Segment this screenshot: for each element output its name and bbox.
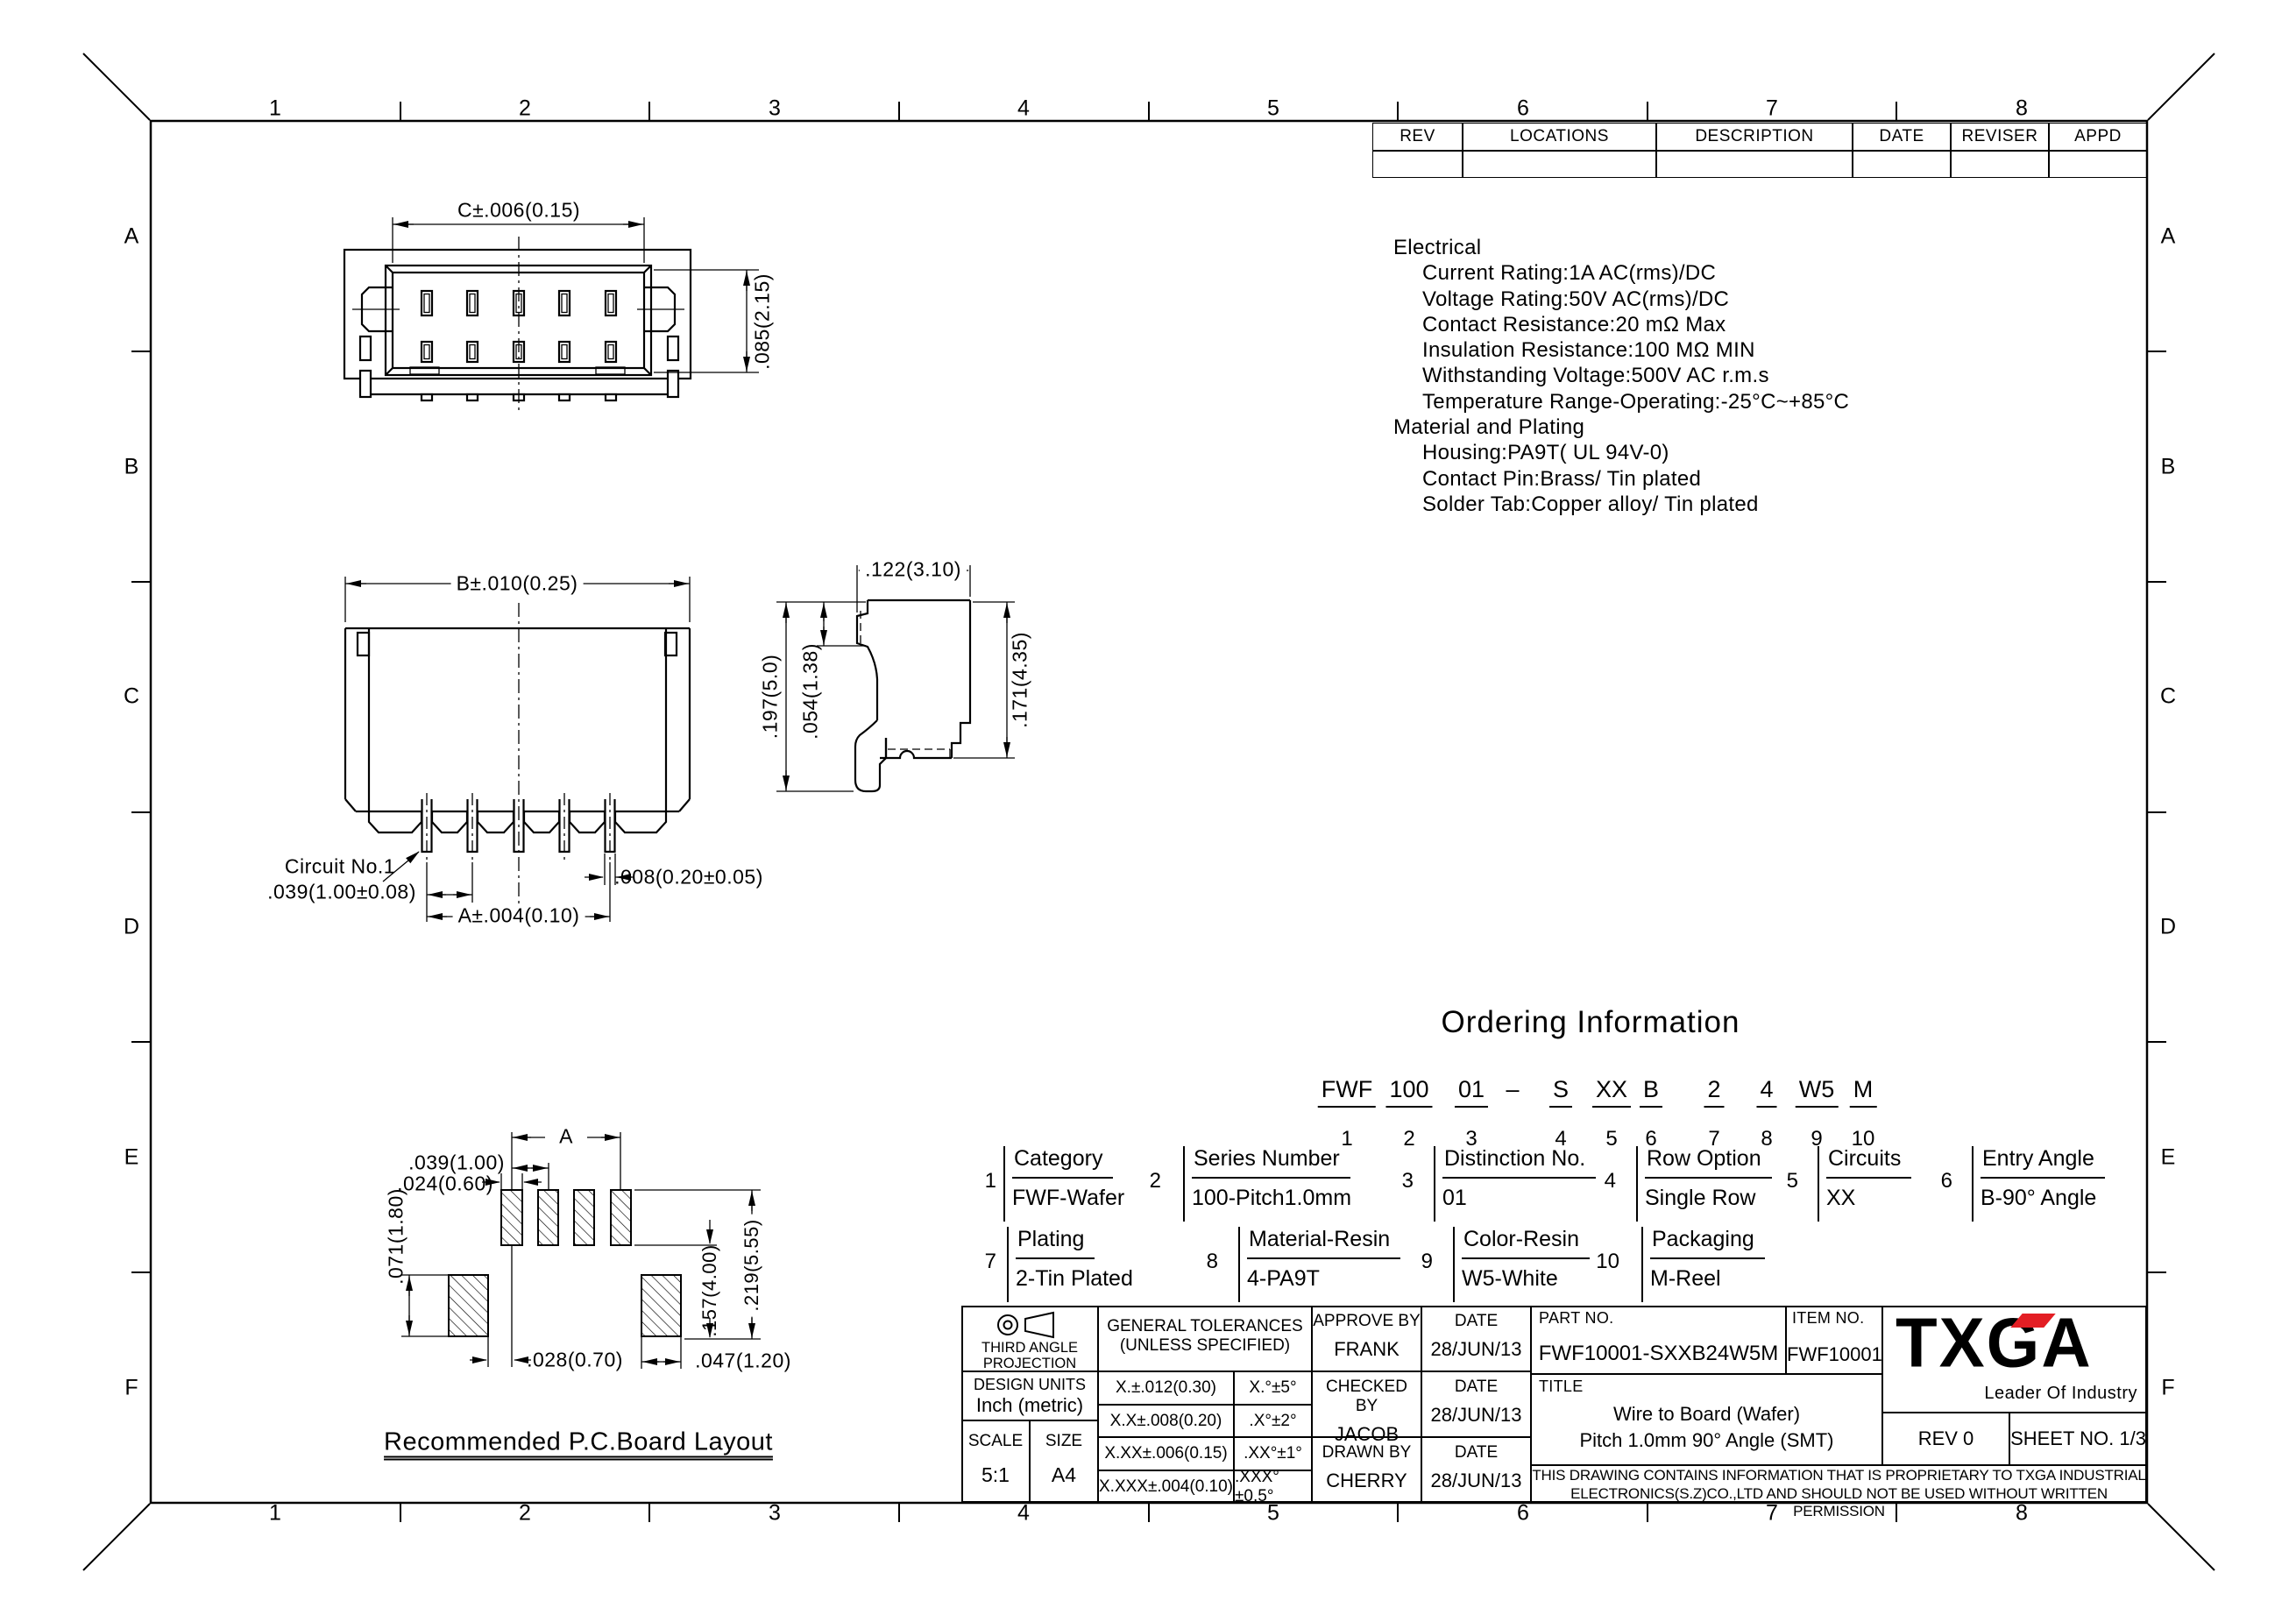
spec-line: Temperature Range-Operating:-25°C~+85°C bbox=[1422, 389, 1849, 414]
grid-col-label: 2 bbox=[519, 1501, 531, 1526]
rev-empty-cell bbox=[1463, 151, 1656, 178]
scale-cell: SCALE 5:1 bbox=[961, 1420, 1030, 1503]
dim-label: .219(5.55) bbox=[741, 1214, 763, 1316]
approve-date-cell: DATE 28/JUN/13 bbox=[1421, 1306, 1531, 1371]
projection-caption: PROJECTION bbox=[962, 1356, 1097, 1372]
ordering-item-number: 8 bbox=[1187, 1250, 1218, 1274]
code-segment: 4 bbox=[1756, 1076, 1776, 1108]
rev-header: DESCRIPTION bbox=[1656, 123, 1853, 151]
code-segment: 100 bbox=[1385, 1076, 1432, 1108]
spec-section-heading: Material and Plating bbox=[1393, 414, 1849, 440]
ordering-item: Series Number 100-Pitch1.0mm bbox=[1183, 1146, 1351, 1222]
code-segment: M bbox=[1850, 1076, 1877, 1108]
dim-label: .085(2.15) bbox=[751, 273, 775, 370]
drawing-title: Wire to Board (Wafer) bbox=[1532, 1403, 1881, 1426]
ordering-item-number: 9 bbox=[1401, 1250, 1433, 1274]
dim-label: .047(1.20) bbox=[695, 1349, 791, 1373]
part-no-cell: PART NO. FWF10001-SXXB24W5M bbox=[1531, 1306, 1786, 1374]
ordering-item-number: 6 bbox=[1921, 1169, 1952, 1193]
tolerance-linear: X.±.012(0.30) bbox=[1098, 1371, 1234, 1405]
checked-by-cell: CHECKED BY JACOB bbox=[1312, 1371, 1421, 1437]
grid-row-label: F bbox=[2161, 1376, 2174, 1401]
engineering-drawing-sheet: 1 2 3 4 5 6 7 8 1 2 3 4 5 6 7 8 A B C D … bbox=[0, 0, 2296, 1622]
dim-label: .028(0.70) bbox=[527, 1349, 623, 1372]
ordering-item-number: 3 bbox=[1382, 1169, 1414, 1193]
view-front-face bbox=[344, 217, 759, 414]
ordering-item-number: 1 bbox=[965, 1169, 996, 1193]
revision-table: REV LOCATIONS DESCRIPTION DATE REVISER A… bbox=[1372, 123, 2147, 178]
ordering-item: Distinction No. 01 bbox=[1434, 1146, 1596, 1222]
third-angle-projection-icon bbox=[996, 1310, 1066, 1340]
txga-tagline: Leader Of Industry bbox=[1984, 1384, 2137, 1404]
ordering-item: Category FWF-Wafer bbox=[1003, 1146, 1124, 1222]
code-segment: FWF bbox=[1318, 1076, 1376, 1108]
ordering-item: Material-Resin 4-PA9T bbox=[1238, 1227, 1400, 1302]
grid-row-label: A bbox=[2161, 224, 2176, 250]
grid-col-label: 3 bbox=[769, 1501, 781, 1526]
drawn-date-cell: DATE 28/JUN/13 bbox=[1421, 1437, 1531, 1503]
code-position-number: 5 bbox=[1605, 1127, 1617, 1151]
code-segment: S bbox=[1549, 1076, 1572, 1108]
grid-col-label: 4 bbox=[1017, 96, 1030, 122]
projection-caption: THIRD ANGLE bbox=[962, 1340, 1097, 1356]
spec-line: Voltage Rating:50V AC(rms)/DC bbox=[1422, 287, 1849, 312]
ordering-item: Plating 2-Tin Plated bbox=[1007, 1227, 1133, 1302]
tolerances-header-cell: GENERAL TOLERANCES (UNLESS SPECIFIED) bbox=[1098, 1306, 1312, 1371]
ordering-item: Packaging M-Reel bbox=[1641, 1227, 1765, 1302]
code-segment: XX bbox=[1592, 1076, 1631, 1108]
rev-header: LOCATIONS bbox=[1463, 123, 1656, 151]
tolerance-linear: X.XX±.006(0.15) bbox=[1098, 1437, 1234, 1470]
tolerance-angular: X.°±5° bbox=[1234, 1371, 1312, 1405]
specifications-block: Electrical Current Rating:1A AC(rms)/DC … bbox=[1393, 235, 1849, 517]
grid-col-label: 4 bbox=[1017, 1501, 1030, 1526]
rev-header: DATE bbox=[1853, 123, 1951, 151]
approve-by-cell: APPROVE BY FRANK bbox=[1312, 1306, 1421, 1371]
title-block: THIRD ANGLE PROJECTION DESIGN UNITS Inch… bbox=[961, 1306, 2147, 1503]
rev-empty-cell bbox=[2049, 151, 2147, 178]
dim-label: .071(1.80) bbox=[385, 1188, 408, 1285]
tolerance-linear: X.X±.008(0.20) bbox=[1098, 1405, 1234, 1437]
code-segment: B bbox=[1640, 1076, 1662, 1108]
tolerance-angular: .XX°±1° bbox=[1234, 1437, 1312, 1470]
sheet-no-cell: SHEET NO. 1/3 bbox=[2009, 1413, 2147, 1465]
part-number: FWF10001-SXXB24W5M bbox=[1532, 1342, 1785, 1366]
pcb-layout-title: Recommended P.C.Board Layout bbox=[384, 1428, 773, 1457]
drawn-by-cell: DRAWN BY CHERRY bbox=[1312, 1437, 1421, 1503]
code-segment: 2 bbox=[1704, 1076, 1724, 1108]
dim-label: A±.004(0.10) bbox=[453, 904, 585, 928]
grid-col-label: 5 bbox=[1267, 96, 1279, 122]
grid-row-label: A bbox=[124, 224, 139, 250]
dim-label: .039(1.00±0.08) bbox=[267, 881, 416, 904]
dim-label: .054(1.38) bbox=[799, 643, 823, 740]
ordering-item-number: 10 bbox=[1588, 1250, 1619, 1274]
grid-row-label: E bbox=[124, 1145, 139, 1171]
size-cell: SIZE A4 bbox=[1030, 1420, 1098, 1503]
grid-row-label: B bbox=[2161, 455, 2176, 480]
grid-row-label: D bbox=[2160, 915, 2176, 940]
ordering-item: Circuits XX bbox=[1818, 1146, 1911, 1222]
spec-line: Contact Resistance:20 mΩ Max bbox=[1422, 312, 1849, 337]
txga-logo: TXGA bbox=[1896, 1302, 2093, 1384]
grid-col-label: 1 bbox=[269, 1501, 281, 1526]
checked-date-cell: DATE 28/JUN/13 bbox=[1421, 1371, 1531, 1437]
grid-col-label: 7 bbox=[1766, 96, 1778, 122]
projection-cell: THIRD ANGLE PROJECTION bbox=[961, 1306, 1098, 1371]
ordering-item: Entry Angle B-90° Angle bbox=[1972, 1146, 2105, 1222]
ordering-item-number: 7 bbox=[965, 1250, 996, 1274]
code-segment: 01 bbox=[1455, 1076, 1488, 1108]
rev-header: APPD bbox=[2049, 123, 2147, 151]
rev-empty-cell bbox=[1372, 151, 1463, 178]
rev-empty-cell bbox=[1951, 151, 2049, 178]
item-no-cell: ITEM NO. FWF10001 bbox=[1786, 1306, 1882, 1374]
ordering-item-number: 4 bbox=[1584, 1169, 1616, 1193]
spec-line: Withstanding Voltage:500V AC r.m.s bbox=[1422, 363, 1849, 388]
spec-line: Housing:PA9T( UL 94V-0) bbox=[1422, 440, 1849, 465]
dim-label: .171(4.35) bbox=[1009, 632, 1032, 728]
code-position-number: 2 bbox=[1403, 1127, 1414, 1151]
code-separator: – bbox=[1502, 1076, 1522, 1106]
rev-header: REVISER bbox=[1951, 123, 2049, 151]
grid-row-label: B bbox=[124, 455, 139, 480]
code-segment: W5 bbox=[1796, 1076, 1839, 1108]
grid-col-label: 6 bbox=[1517, 1501, 1529, 1526]
tolerance-angular: .XXX°±0.5° bbox=[1234, 1470, 1312, 1503]
dim-label: .039(1.00) bbox=[408, 1151, 505, 1175]
ordering-item: Row Option Single Row bbox=[1636, 1146, 1772, 1222]
dim-label: A bbox=[554, 1125, 578, 1149]
dim-label: .197(5.0) bbox=[759, 655, 783, 740]
tolerance-linear: X.XXX±.004(0.10) bbox=[1098, 1470, 1234, 1503]
rev-header: REV bbox=[1372, 123, 1463, 151]
grid-row-label: E bbox=[2161, 1145, 2176, 1171]
dim-label: .024(0.60) bbox=[397, 1172, 493, 1196]
grid-col-label: 3 bbox=[769, 96, 781, 122]
grid-col-label: 8 bbox=[2016, 96, 2028, 122]
grid-col-label: 2 bbox=[519, 96, 531, 122]
grid-row-label: F bbox=[124, 1376, 138, 1401]
drawing-title: Pitch 1.0mm 90° Angle (SMT) bbox=[1532, 1429, 1881, 1452]
grid-row-label: C bbox=[2160, 684, 2176, 710]
rev-empty-cell bbox=[1853, 151, 1951, 178]
spec-line: Insulation Resistance:100 MΩ MIN bbox=[1422, 337, 1849, 363]
spec-line: Solder Tab:Copper alloy/ Tin plated bbox=[1422, 492, 1849, 517]
rev-empty-cell bbox=[1656, 151, 1853, 178]
spec-line: Contact Pin:Brass/ Tin plated bbox=[1422, 466, 1849, 492]
grid-col-label: 6 bbox=[1517, 96, 1529, 122]
dim-label: .157(4.00) bbox=[698, 1244, 721, 1336]
logo-cell: TXGA Leader Of Industry bbox=[1882, 1306, 2147, 1413]
grid-row-label: D bbox=[124, 915, 139, 940]
grid-col-label: 1 bbox=[269, 96, 281, 122]
dim-label: C±.006(0.15) bbox=[457, 199, 580, 223]
ordering-item: Color-Resin W5-White bbox=[1453, 1227, 1590, 1302]
design-units-cell: DESIGN UNITS Inch (metric) bbox=[961, 1371, 1098, 1420]
dim-label: B±.010(0.25) bbox=[451, 572, 584, 596]
ordering-title: Ordering Information bbox=[1442, 1005, 1740, 1040]
dim-label: .008(0.20±0.05) bbox=[614, 866, 763, 889]
dim-label: .122(3.10) bbox=[860, 558, 967, 582]
title-cell: TITLE Wire to Board (Wafer) Pitch 1.0mm … bbox=[1531, 1374, 1882, 1465]
grid-row-label: C bbox=[124, 684, 139, 710]
spec-line: Current Rating:1A AC(rms)/DC bbox=[1422, 260, 1849, 286]
rev-cell: REV 0 bbox=[1882, 1413, 2009, 1465]
ordering-item-number: 2 bbox=[1130, 1169, 1161, 1193]
circuit-no1-label: Circuit No.1 bbox=[285, 855, 395, 879]
ordering-item-number: 5 bbox=[1767, 1169, 1798, 1193]
tolerance-angular: .X°±2° bbox=[1234, 1405, 1312, 1437]
spec-section-heading: Electrical bbox=[1393, 235, 1849, 260]
disclaimer-cell: THIS DRAWING CONTAINS INFORMATION THAT I… bbox=[1531, 1465, 2147, 1503]
item-number: FWF10001 bbox=[1787, 1343, 1881, 1366]
